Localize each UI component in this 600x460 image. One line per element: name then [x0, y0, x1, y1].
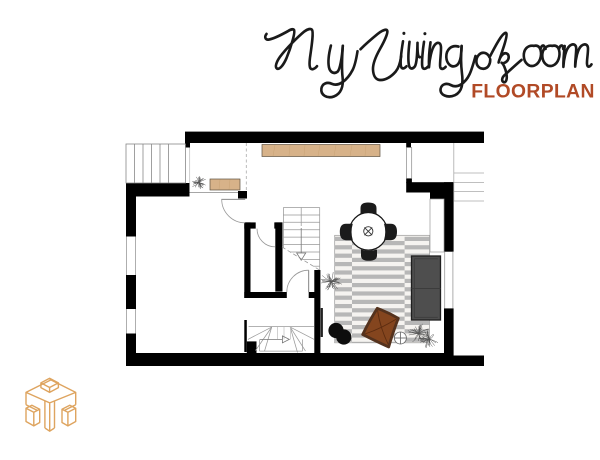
- svg-text:FLOORPLAN: FLOORPLAN: [471, 82, 595, 103]
